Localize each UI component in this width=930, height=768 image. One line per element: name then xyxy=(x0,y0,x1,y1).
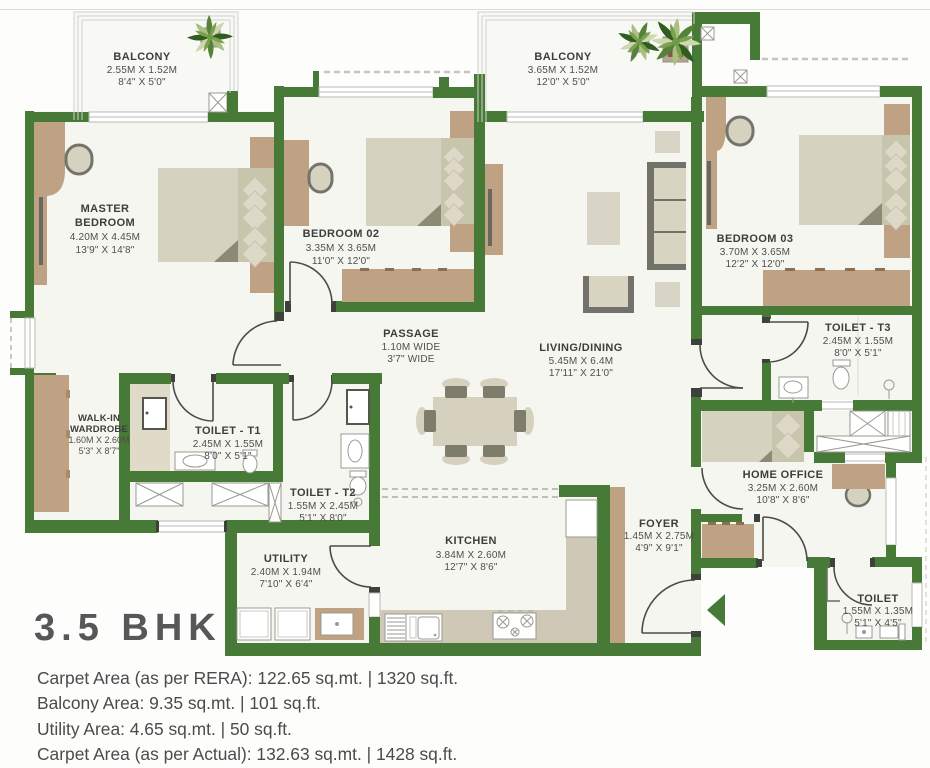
svg-text:WARDROBE: WARDROBE xyxy=(70,424,128,435)
svg-text:12'7" X 8'6": 12'7" X 8'6" xyxy=(444,562,498,573)
svg-text:5'1" X 4'5": 5'1" X 4'5" xyxy=(854,618,902,629)
svg-text:2.40M X 1.94M: 2.40M X 1.94M xyxy=(251,567,321,578)
svg-text:8'4" X 5'0": 8'4" X 5'0" xyxy=(118,77,166,88)
svg-text:5'3" X 8'7": 5'3" X 8'7" xyxy=(79,446,120,456)
svg-text:3'7" WIDE: 3'7" WIDE xyxy=(387,354,434,365)
svg-text:BEDROOM: BEDROOM xyxy=(75,217,135,229)
svg-text:1.45M X 2.75M: 1.45M X 2.75M xyxy=(624,531,694,542)
svg-text:TOILET: TOILET xyxy=(857,593,898,605)
svg-text:17'11" X 21'0": 17'11" X 21'0" xyxy=(549,368,613,379)
svg-text:WALK-IN: WALK-IN xyxy=(78,413,120,424)
svg-text:5.45M X 6.4M: 5.45M X 6.4M xyxy=(549,356,614,367)
svg-text:12'0" X 5'0": 12'0" X 5'0" xyxy=(536,77,590,88)
svg-text:TOILET - T2: TOILET - T2 xyxy=(290,487,356,499)
svg-text:1.55M X 1.35M: 1.55M X 1.35M xyxy=(843,606,913,617)
svg-text:2.45M X 1.55M: 2.45M X 1.55M xyxy=(823,336,893,347)
svg-text:4.20M X 4.45M: 4.20M X 4.45M xyxy=(70,232,140,243)
svg-text:3.5 BHK: 3.5 BHK xyxy=(34,607,222,649)
svg-text:5'1" X 8'0": 5'1" X 8'0" xyxy=(299,513,347,524)
svg-text:Utility Area: 4.65 sq.mt. | 50: Utility Area: 4.65 sq.mt. | 50 sq.ft. xyxy=(37,719,292,739)
svg-text:12'2" X 12'0": 12'2" X 12'0" xyxy=(725,259,784,270)
svg-text:8'0" X 5'1": 8'0" X 5'1" xyxy=(204,451,252,462)
svg-text:TOILET - T1: TOILET - T1 xyxy=(195,425,261,437)
svg-text:Balcony Area: 9.35 sq.mt. | 10: Balcony Area: 9.35 sq.mt. | 101 sq.ft. xyxy=(37,693,321,713)
svg-text:KITCHEN: KITCHEN xyxy=(445,535,497,547)
svg-text:TOILET - T3: TOILET - T3 xyxy=(825,322,891,334)
svg-text:3.25M X 2.60M: 3.25M X 2.60M xyxy=(748,483,818,494)
svg-text:10'8" X 8'6": 10'8" X 8'6" xyxy=(756,495,810,506)
svg-text:1.55M X 2.45M: 1.55M X 2.45M xyxy=(288,501,358,512)
svg-text:BEDROOM 03: BEDROOM 03 xyxy=(717,233,794,245)
svg-text:UTILITY: UTILITY xyxy=(264,553,309,565)
svg-text:3.35M X 3.65M: 3.35M X 3.65M xyxy=(306,243,376,254)
svg-text:3.65M X 1.52M: 3.65M X 1.52M xyxy=(528,65,598,76)
svg-text:Carpet Area (as per Actual): 1: Carpet Area (as per Actual): 132.63 sq.m… xyxy=(37,744,457,764)
svg-text:4'9" X 9'1": 4'9" X 9'1" xyxy=(635,543,683,554)
svg-text:1.60M X 2.60M: 1.60M X 2.60M xyxy=(68,435,129,445)
svg-text:HOME OFFICE: HOME OFFICE xyxy=(743,469,824,481)
svg-text:2.55M X 1.52M: 2.55M X 1.52M xyxy=(107,65,177,76)
svg-text:3.70M X 3.65M: 3.70M X 3.65M xyxy=(720,247,790,258)
svg-text:2.45M X 1.55M: 2.45M X 1.55M xyxy=(193,439,263,450)
svg-text:8'0" X 5'1": 8'0" X 5'1" xyxy=(834,348,882,359)
svg-text:PASSAGE: PASSAGE xyxy=(383,328,439,340)
svg-text:11'0" X 12'0": 11'0" X 12'0" xyxy=(312,256,371,267)
svg-text:MASTER: MASTER xyxy=(81,203,130,215)
svg-text:Carpet Area (as per RERA): 122: Carpet Area (as per RERA): 122.65 sq.mt.… xyxy=(37,668,458,688)
svg-text:7'10" X 6'4": 7'10" X 6'4" xyxy=(259,579,313,590)
svg-text:3.84M X 2.60M: 3.84M X 2.60M xyxy=(436,550,506,561)
svg-text:BEDROOM 02: BEDROOM 02 xyxy=(303,228,380,240)
svg-text:BALCONY: BALCONY xyxy=(113,51,170,63)
svg-text:LIVING/DINING: LIVING/DINING xyxy=(539,342,622,354)
svg-text:BALCONY: BALCONY xyxy=(534,51,591,63)
svg-text:1.10M WIDE: 1.10M WIDE xyxy=(382,342,441,353)
svg-text:13'9" X 14'8": 13'9" X 14'8" xyxy=(75,245,134,256)
svg-text:FOYER: FOYER xyxy=(639,518,679,530)
